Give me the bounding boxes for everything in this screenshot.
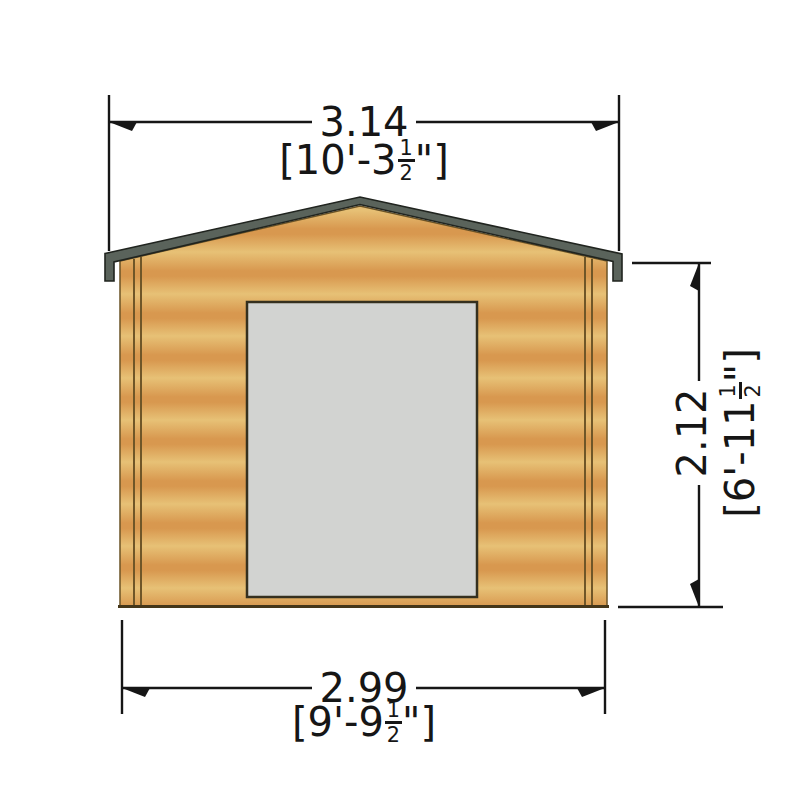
arrowhead-left xyxy=(109,122,137,131)
imperial-value: [10'-312"] xyxy=(279,137,449,183)
right-height-imperial-label: [6'-1112"] xyxy=(714,263,766,603)
fraction: 12 xyxy=(398,138,415,186)
imperial-value: [6'-1112"] xyxy=(717,348,763,518)
fraction: 12 xyxy=(385,700,402,748)
arrowhead-left xyxy=(122,688,150,697)
imperial-value: [9'-912"] xyxy=(292,699,436,745)
bottom-width-imperial-label: [9'-912"] xyxy=(214,696,514,748)
arrowhead-right xyxy=(577,688,605,697)
top-width-imperial-label: [10'-312"] xyxy=(214,134,514,186)
right-height-metric-label: 2.12 xyxy=(666,263,718,603)
metric-value: 2.12 xyxy=(669,381,715,484)
cabin-door-opening xyxy=(247,302,477,597)
elevation-drawing-canvas: 3.14 [10'-312"] 2.99 [9'-912"] 2.12 [6'-… xyxy=(0,0,800,800)
arrowhead-right xyxy=(591,122,619,131)
fraction: 12 xyxy=(718,382,766,399)
